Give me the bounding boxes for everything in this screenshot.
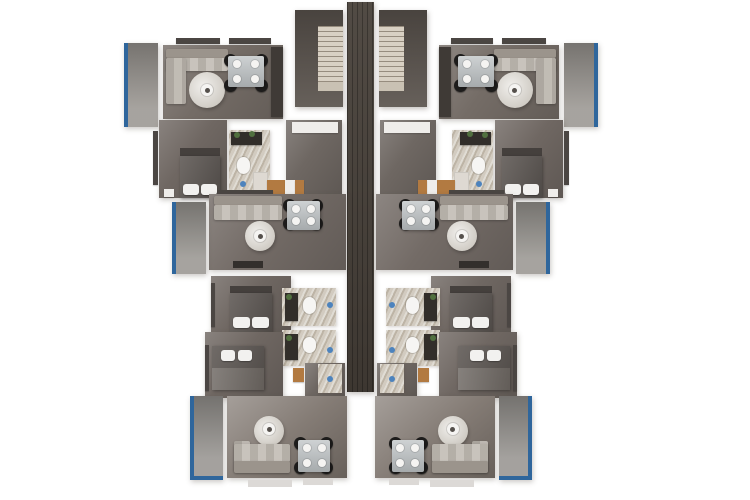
shower-fixture-3-left [327,347,333,353]
entry-step-1-left [248,480,292,487]
plate-top-1-right [481,60,489,68]
shower-fixture-4-right [389,376,395,382]
entry-step-2-right [389,479,419,485]
window-bedroom-1-right [564,131,569,185]
sofa-top-back-right [494,49,556,58]
plate-top-2-left [251,60,259,68]
toilet-3-right [406,337,419,353]
bed-2-headboard-left [230,286,272,293]
coffee-decor-top-right [512,88,517,93]
shower-fixture-1-right [476,181,482,187]
bed-1-pillow-1-right [523,184,539,195]
plate-top-2-right [463,60,471,68]
coffee-decor-mid-left [258,234,263,239]
sofa-top-back-left [166,49,228,58]
window-living-top-1-left [176,38,220,44]
stair-treads-right [379,26,404,82]
shower-fixture-4-left [327,376,333,382]
toilet-2-right [406,297,419,314]
bed-2-headboard-right [450,286,492,293]
plate-bottom-4-right [396,459,404,467]
sofa-mid-seat-right [440,205,508,220]
plate-bottom-2-left [318,444,326,452]
window-bedroom-1-left [153,131,158,185]
stair-landing-right [379,82,404,91]
sofa-top-chaise-left [166,58,186,104]
plate-top-1-left [233,60,241,68]
toilet-2-left [303,297,316,314]
plate-top-3-left [233,75,241,83]
nightstand-1-left [164,189,174,197]
bed-1-pillow-1-left [183,184,199,195]
window-bedroom-3-right [513,345,517,391]
window-living-top-1-right [502,38,546,44]
bed-1-headboard-right [502,148,542,156]
vanity-plant-3-right [430,335,436,341]
plate-bottom-1-right [411,444,419,452]
plate-mid-4-right [407,217,415,225]
toilet-1-left [237,157,250,174]
balcony-mid-right [516,202,550,274]
window-bedroom-3-left [205,345,209,391]
entry-step-2-left [303,479,333,485]
entry-step-1-right [430,480,474,487]
sofa-bottom-seat-left [234,444,290,462]
bed-2-pillow-2-right [453,317,470,328]
bed-3-blanket-right [458,368,510,390]
vanity-plant-2-right [430,294,436,300]
vanity-plant-1a-right [482,132,488,138]
apartment-entry-door-top-left [295,180,304,194]
sofa-bottom-seat-right [432,444,488,462]
hall-bench-white-left [285,180,295,194]
hall-closet-top-left [292,122,338,133]
hall-bench-white-right [427,180,437,194]
sofa-bottom-back-left [234,461,290,473]
toilet-1-right [472,157,485,174]
tv-console-mid-right [459,261,489,268]
balcony-top-right [564,43,598,127]
balcony-bottom-right [499,396,532,480]
window-bedroom-2-right [507,283,511,327]
bed-2-pillow-1-right [472,317,489,328]
corridor [347,2,374,392]
tv-console-mid-left [233,261,263,268]
bed-3-pillow-1-left [221,350,235,361]
plate-mid-3-right [422,217,430,225]
plate-top-3-right [481,75,489,83]
plate-mid-1-right [422,205,430,213]
coffee-decor-mid-right [459,234,464,239]
vanity-plant-1b-right [467,131,473,137]
plate-mid-1-left [292,205,300,213]
sofa-bottom-back-right [432,461,488,473]
vanity-plant-1b-left [249,131,255,137]
dining-table-mid-right [402,201,435,230]
window-living-top-2-left [229,38,271,44]
sofa-mid-back-left [214,196,282,205]
shower-fixture-2-left [327,302,333,308]
dining-table-mid-left [287,201,320,230]
coffee-decor-top-left [205,88,210,93]
shower-fixture-1-left [240,181,246,187]
window-bedroom-2-left [211,283,215,327]
balcony-top-left [124,43,158,127]
vanity-plant-2-left [286,294,292,300]
floor-plan [0,0,750,500]
bed-2-pillow-1-left [233,317,250,328]
vanity-plant-3-left [286,335,292,341]
plate-bottom-1-left [303,444,311,452]
plate-mid-2-left [307,205,315,213]
balcony-bottom-left [190,396,223,480]
apartment-entry-door-bottom-left [293,368,304,382]
shower-fixture-2-right [389,302,395,308]
sofa-mid-seat-left [214,205,282,220]
coffee-decor-bottom-right [450,427,455,432]
bed-3-pillow-1-right [487,350,501,361]
stair-landing-left [318,82,343,91]
bed-2-pillow-2-left [252,317,269,328]
plate-mid-3-left [292,217,300,225]
kitchen-counter-top-left [271,47,283,117]
bed-3-blanket-left [212,368,264,390]
bed-3-pillow-2-right [470,350,484,361]
bed-1-headboard-left [180,148,220,156]
plate-bottom-3-right [411,459,419,467]
nightstand-1-right [548,189,558,197]
plate-bottom-4-left [318,459,326,467]
stair-treads-left [318,26,343,82]
balcony-mid-left [172,202,206,274]
apartment-entry-door-top-right [418,180,427,194]
hall-closet-top-right [384,122,430,133]
shower-fixture-3-right [389,347,395,353]
kitchen-counter-top-right [439,47,451,117]
bed-3-pillow-2-left [238,350,252,361]
vanity-plant-1a-left [234,132,240,138]
window-living-top-2-right [451,38,493,44]
plate-top-4-right [463,75,471,83]
plate-bottom-3-left [303,459,311,467]
coffee-decor-bottom-left [267,427,272,432]
plate-bottom-2-right [396,444,404,452]
sofa-mid-back-right [440,196,508,205]
plate-mid-4-left [307,217,315,225]
apartment-entry-door-bottom-right [418,368,429,382]
plate-top-4-left [251,75,259,83]
sofa-top-chaise-right [536,58,556,104]
toilet-3-left [303,337,316,353]
plate-mid-2-right [407,205,415,213]
